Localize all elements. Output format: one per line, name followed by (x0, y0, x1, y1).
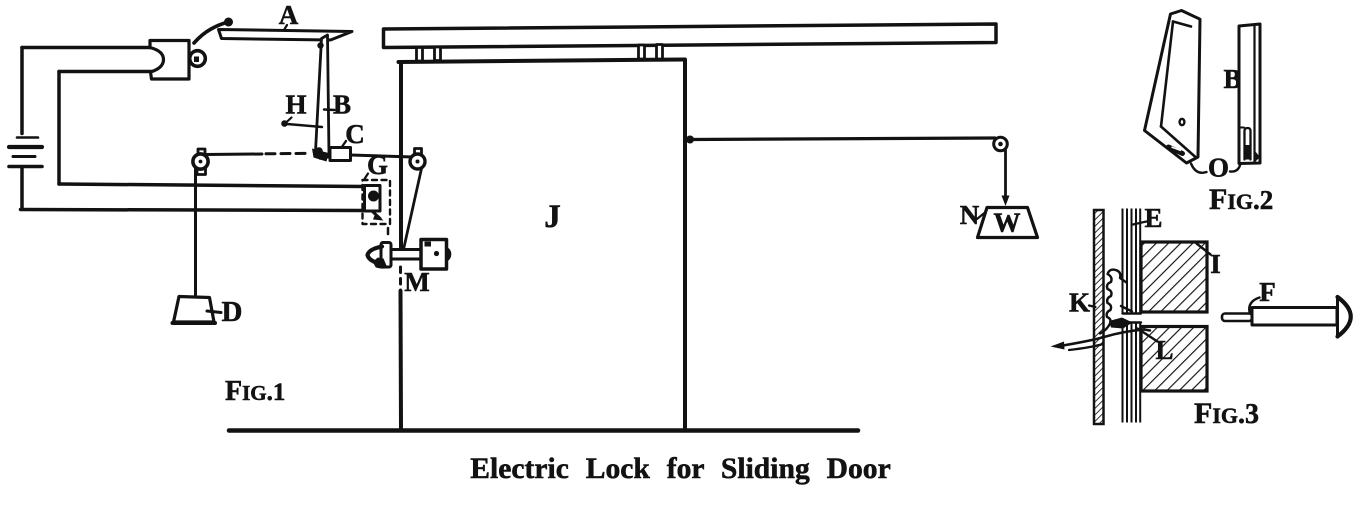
svg-text:L: L (1155, 335, 1173, 365)
svg-text:B: B (333, 90, 351, 120)
svg-text:FIG.1: FIG.1 (225, 376, 285, 407)
svg-text:F: F (1259, 277, 1276, 307)
svg-text:W: W (994, 208, 1021, 238)
svg-text:E: E (1144, 203, 1162, 233)
svg-text:D: D (222, 296, 243, 328)
svg-text:M: M (404, 267, 429, 297)
svg-text:N: N (960, 200, 980, 230)
svg-text:Electric Lock for Sliding Door: Electric Lock for Sliding Door (470, 453, 891, 485)
svg-text:C: C (345, 119, 365, 149)
svg-text:G: G (367, 150, 388, 180)
svg-text:H: H (285, 90, 306, 120)
svg-text:O: O (1208, 153, 1229, 183)
svg-text:J: J (544, 199, 561, 235)
svg-text:A: A (279, 0, 299, 30)
svg-text:I: I (1210, 249, 1221, 279)
svg-text:K: K (1069, 288, 1090, 318)
